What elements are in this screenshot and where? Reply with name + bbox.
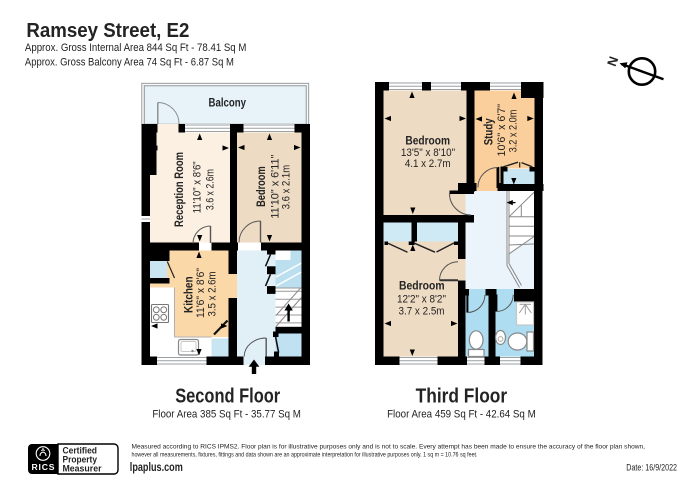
svg-text:12'2" x 8'2": 12'2" x 8'2"	[397, 294, 446, 306]
svg-text:3.5 x 2.6m: 3.5 x 2.6m	[206, 272, 218, 317]
svg-text:Floor Area 385 Sq Ft - 35.77 S: Floor Area 385 Sq Ft - 35.77 Sq M	[152, 408, 301, 420]
svg-text:Ramsey Street, E2: Ramsey Street, E2	[26, 19, 189, 42]
svg-text:Second Floor: Second Floor	[175, 385, 280, 408]
svg-text:Floor Area 459 Sq Ft - 42.64 S: Floor Area 459 Sq Ft - 42.64 Sq M	[387, 408, 536, 420]
svg-text:Third Floor: Third Floor	[416, 385, 508, 408]
svg-text:Balcony: Balcony	[209, 96, 247, 110]
svg-text:Bedroom: Bedroom	[399, 281, 445, 293]
svg-text:lpaplus.com: lpaplus.com	[130, 460, 183, 474]
svg-text:11'10" x 6'11": 11'10" x 6'11"	[269, 155, 281, 219]
svg-text:Approx. Gross Internal Area 84: Approx. Gross Internal Area 844 Sq Ft - …	[25, 42, 247, 54]
svg-text:3.6 x 2.1m: 3.6 x 2.1m	[281, 165, 293, 209]
svg-text:Kitchen: Kitchen	[183, 276, 195, 313]
svg-text:Measured according to RICS IPM: Measured according to RICS IPMS2. Floor …	[132, 444, 646, 451]
svg-text:Date: 16/9/2022: Date: 16/9/2022	[626, 463, 677, 473]
svg-text:3.7 x 2.5m: 3.7 x 2.5m	[399, 306, 445, 318]
svg-text:3.6 x 2.6m: 3.6 x 2.6m	[205, 169, 217, 210]
svg-text:Study: Study	[484, 118, 496, 146]
svg-text:Reception Room: Reception Room	[174, 152, 186, 227]
svg-text:Approx. Gross Balcony Area 74: Approx. Gross Balcony Area 74 Sq Ft - 6.…	[25, 57, 234, 69]
svg-text:11'10" x 8'6": 11'10" x 8'6"	[192, 161, 204, 213]
svg-text:3.2 x 2.0m: 3.2 x 2.0m	[508, 110, 520, 153]
svg-text:4.1 x 2.7m: 4.1 x 2.7m	[405, 158, 451, 170]
svg-text:Bedroom: Bedroom	[256, 166, 268, 207]
svg-text:Bedroom: Bedroom	[405, 135, 450, 147]
svg-text:RICS: RICS	[32, 462, 55, 472]
svg-text:10'6" x 6'7": 10'6" x 6'7"	[496, 104, 508, 157]
svg-text:however all measurements, fixt: however all measurements, fixtures, fitt…	[132, 452, 478, 459]
svg-text:Measurer: Measurer	[63, 464, 103, 474]
